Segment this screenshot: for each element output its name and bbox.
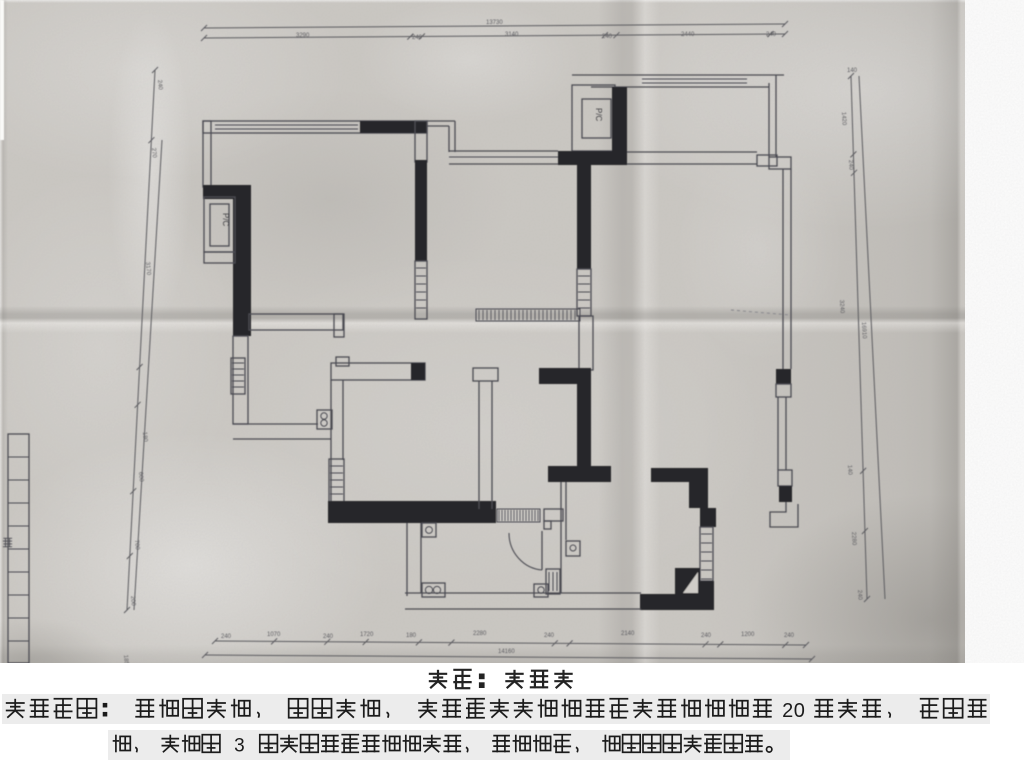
svg-text:1200: 1200 (741, 632, 755, 638)
svg-text:600: 600 (137, 472, 144, 483)
svg-text:240: 240 (602, 34, 613, 40)
svg-text:2: 2 (782, 700, 793, 722)
svg-text:3170: 3170 (144, 262, 151, 276)
svg-text:140: 140 (847, 68, 858, 74)
svg-text:P/C: P/C (221, 213, 230, 227)
svg-text:1720: 1720 (360, 632, 374, 638)
svg-text:200: 200 (129, 596, 136, 607)
svg-text:240: 240 (856, 590, 863, 601)
svg-text:240: 240 (156, 80, 163, 91)
svg-text:2140: 2140 (621, 631, 635, 637)
svg-text:240: 240 (412, 35, 423, 41)
svg-text:1070: 1070 (267, 632, 281, 638)
svg-text:3: 3 (234, 736, 245, 757)
svg-text:P/C: P/C (594, 108, 603, 122)
svg-text:16910: 16910 (860, 322, 867, 340)
svg-text:3140: 3140 (505, 32, 519, 38)
svg-text:2440: 2440 (681, 32, 695, 38)
svg-text:240: 240 (323, 634, 334, 640)
svg-text:240: 240 (784, 633, 795, 639)
svg-text:180: 180 (406, 633, 417, 639)
svg-text:240: 240 (847, 160, 854, 171)
svg-text:140: 140 (846, 465, 853, 476)
svg-text:0: 0 (794, 700, 805, 722)
svg-text:240: 240 (701, 633, 712, 639)
svg-text:2280: 2280 (473, 631, 487, 637)
svg-text:1420: 1420 (840, 112, 847, 126)
svg-text:3290: 3290 (296, 33, 310, 39)
svg-text:3240: 3240 (838, 300, 845, 314)
svg-text:13730: 13730 (486, 20, 503, 26)
svg-text:270: 270 (150, 148, 157, 159)
svg-text:240: 240 (221, 634, 232, 640)
svg-text:240: 240 (766, 32, 777, 38)
svg-text:2280: 2280 (850, 532, 857, 546)
svg-text:14160: 14160 (498, 649, 515, 655)
svg-text:240: 240 (544, 633, 555, 639)
svg-text:180: 180 (141, 432, 148, 443)
svg-text:700: 700 (133, 540, 140, 551)
